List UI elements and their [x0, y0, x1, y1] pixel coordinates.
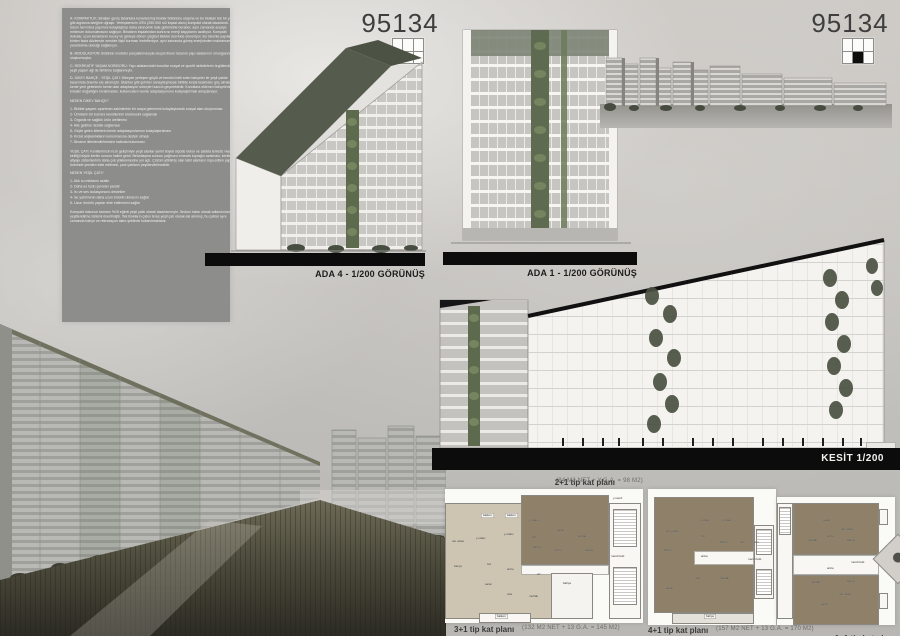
room-label: balkon — [481, 513, 494, 518]
room-label: y.merd. — [613, 497, 623, 500]
room-label: hol — [701, 535, 705, 538]
room-label: hol — [487, 563, 491, 566]
panel-list-item: 4- Aile gelirine destek sağlaması — [70, 124, 230, 128]
ada4-title-bar — [205, 253, 425, 266]
room-label: antre — [507, 568, 514, 571]
room-label: otu.odası — [452, 540, 464, 543]
panel-paragraph: YEŞİL ÇATI: Kentlerimizin hızlı gelişimi… — [70, 150, 230, 168]
room-label: asn. — [754, 541, 760, 544]
room-label: salon — [485, 583, 492, 586]
panel-paragraph: D- DİKEY BAHÇE - YEŞİL ÇATI: Dikeyde yer… — [70, 77, 230, 95]
plan-a-title-row: 2+1 tip kat planı (84 M2 NET + Y.G.A. = … — [448, 478, 643, 487]
room-label: balkon — [495, 614, 508, 619]
room-label: salon — [821, 603, 828, 606]
room-label: y.odası — [722, 519, 731, 522]
plan-3p1-info: (132 M2 NET + 13 G.A. = 145 M2) — [522, 625, 620, 631]
site-render-image — [0, 312, 446, 636]
room-label: oda — [695, 577, 700, 580]
kesit-section-drawing — [432, 226, 886, 450]
room-label: mutfak — [720, 577, 729, 580]
room-label: antre — [555, 549, 562, 552]
room-label: salon — [557, 529, 564, 532]
room-label: banyo — [664, 549, 672, 552]
room-label: mutfak — [811, 581, 820, 584]
panel-list-item: 2- Daha az tozlu çevreler yaratır — [70, 185, 230, 189]
room-label: banyo — [454, 565, 462, 568]
panel-list-item: 3- Isı ve ses izolasyonunu destekler — [70, 190, 230, 194]
masterplan-render-image — [600, 28, 892, 128]
room-label: antre — [827, 567, 834, 570]
panel-list-item: 7- Binanın iklimlendirilmesine katkıda b… — [70, 140, 230, 144]
plan-a-drawing: balkon balkon y.odası otu.odası y.odası … — [445, 489, 643, 623]
panel-list-item: 2- Ürünlerin bir kısmını kendilerinin ür… — [70, 113, 230, 117]
room-label: y.odası — [700, 519, 709, 522]
panel-list-item: 5- Göçle gelen kitlelerin kente adaptasy… — [70, 130, 230, 134]
room-label: y.odası — [504, 533, 513, 536]
panel-list-item: 1- Atık su miktarını azaltır — [70, 179, 230, 183]
room-label: banyo — [847, 539, 855, 542]
panel-list-item: 3- Organik ve sağlıklı ürün üretilmesi — [70, 119, 230, 123]
panel-list-item: 4- Su yalıtımının daha uzun ömürlü olmas… — [70, 196, 230, 200]
plan-b-drawing: y.odası y.odası ebv.odası hol banyo asn.… — [648, 489, 776, 625]
room-label: balkon — [505, 513, 518, 518]
panel-paragraph: B- MODÜLASYON: Bütünün modüler parçalanm… — [70, 52, 230, 61]
room-label: otu.odası — [841, 528, 853, 531]
plan-c-bottom-row: (44 M2 NET + 8 G.A. = 52 M2) 1+1 tip kat… — [700, 628, 895, 636]
plan-a-bottom-row: 3+1 tip kat planı (132 M2 NET + 13 G.A. … — [450, 625, 645, 635]
panel-list-item: 5- Uzun ömürlü yapılar elde edilmesini s… — [70, 201, 230, 205]
room-label: bahçe — [704, 614, 716, 619]
room-label: merd.holü — [851, 561, 864, 564]
diamond-dot — [891, 551, 900, 565]
kesit-title-bar: KESİT 1/200 — [432, 448, 900, 470]
panel-paragraph: A- KOMPAKTLIK: Binaları geniş tabanlara … — [70, 17, 230, 48]
ada4-elevation-drawing — [226, 18, 428, 254]
room-label: oda — [507, 593, 512, 596]
panel-list-item: 1- Birlikte yaşam: apartman sakinlerinin… — [70, 108, 230, 112]
room-label: antre — [827, 535, 834, 538]
panel-paragraph: Kompakt dokunun tamamı %15 eğimli yeşil … — [70, 211, 230, 224]
room-label: asn. — [740, 541, 746, 544]
plan-3p1-label: 3+1 tip kat planı — [454, 625, 514, 634]
competition-board: A- KOMPAKTLIK: Binaları geniş tabanlara … — [0, 0, 900, 636]
panel-heading: NEDEN YEŞİL ÇATI? — [70, 171, 230, 175]
room-label: wc — [537, 573, 541, 576]
room-label: asans. — [585, 549, 594, 552]
room-label: bahçe — [563, 582, 571, 585]
room-label: banyo — [533, 546, 541, 549]
panel-paragraph: C- REKREATİF YAŞAM KORİDORU: Yapı adalar… — [70, 64, 230, 73]
plan-a-title-info: (84 M2 NET + Y.G.A. = 98 M2) — [556, 478, 643, 484]
room-label: otu.odası — [839, 593, 851, 596]
room-label: hol — [532, 536, 536, 539]
room-label: mutfak — [529, 595, 538, 598]
room-label: banyo — [847, 580, 855, 583]
room-label: y.odası — [529, 519, 538, 522]
room-label: mutfak — [577, 535, 586, 538]
concept-text: A- KOMPAKTLIK: Binaları geniş tabanlara … — [62, 8, 230, 237]
room-label: merd.holü — [748, 558, 761, 561]
panel-heading: NEDEN DİKEY BAHÇE? — [70, 100, 230, 104]
room-label: mutfak — [808, 539, 817, 542]
room-label: antre — [701, 555, 708, 558]
ada4-label: ADA 4 - 1/200 GÖRÜNÜŞ — [245, 269, 425, 279]
room-label: salon — [823, 519, 830, 522]
room-label: ebv.odası — [666, 530, 679, 533]
room-label: banyo — [720, 541, 728, 544]
room-label: y.odası — [476, 537, 485, 540]
panel-list-item: 6- Kırsal alışkanlıkların korunmasına de… — [70, 135, 230, 139]
room-label: merd.holü — [611, 555, 624, 558]
room-label: salon — [666, 587, 673, 590]
concept-text-panel: A- KOMPAKTLIK: Binaları geniş tabanlara … — [62, 8, 230, 322]
